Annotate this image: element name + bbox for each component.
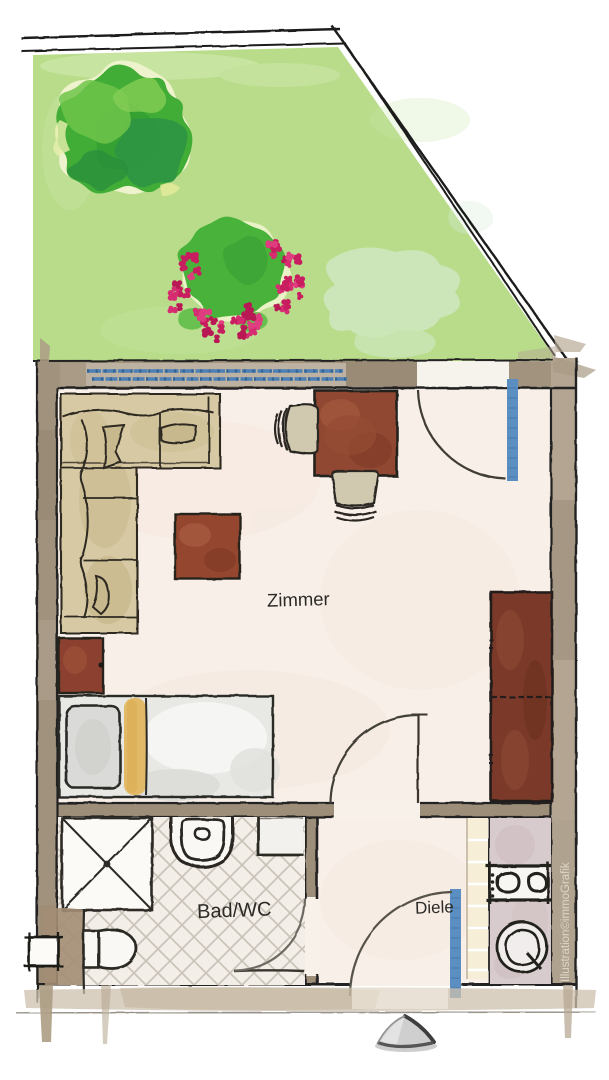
svg-text:Illustration©immoGrafik: Illustration©immoGrafik [560, 862, 572, 982]
svg-text:Diele: Diele [415, 897, 454, 917]
svg-text:Bad/WC: Bad/WC [197, 899, 272, 924]
svg-text:Zimmer: Zimmer [267, 588, 330, 611]
